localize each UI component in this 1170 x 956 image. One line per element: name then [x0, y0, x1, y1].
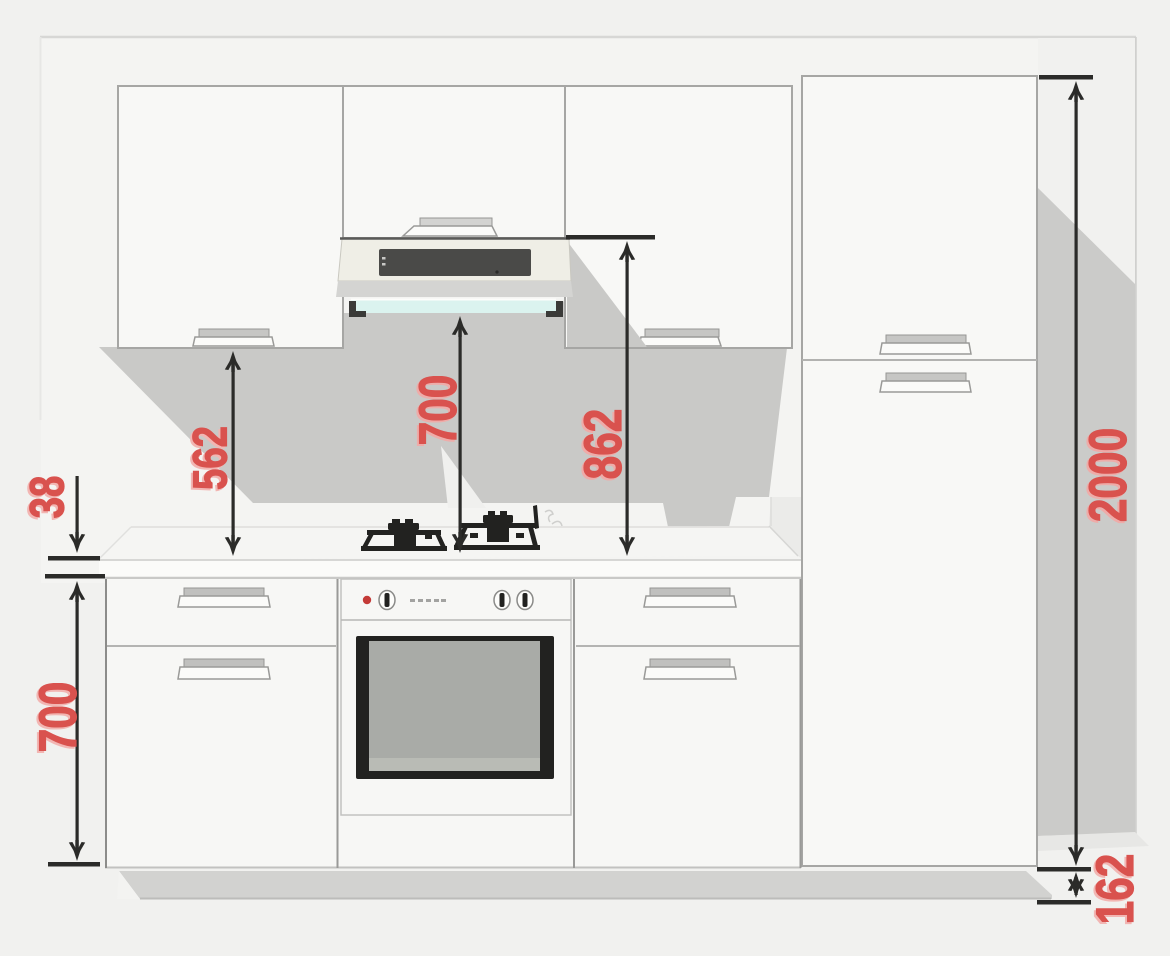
svg-text:162: 162: [1087, 854, 1146, 925]
svg-text:862: 862: [575, 409, 634, 480]
svg-text:2000: 2000: [1080, 428, 1139, 522]
svg-text:700: 700: [30, 682, 89, 753]
svg-text:700: 700: [410, 375, 469, 446]
svg-text:562: 562: [184, 426, 237, 490]
svg-text:38: 38: [21, 476, 74, 519]
